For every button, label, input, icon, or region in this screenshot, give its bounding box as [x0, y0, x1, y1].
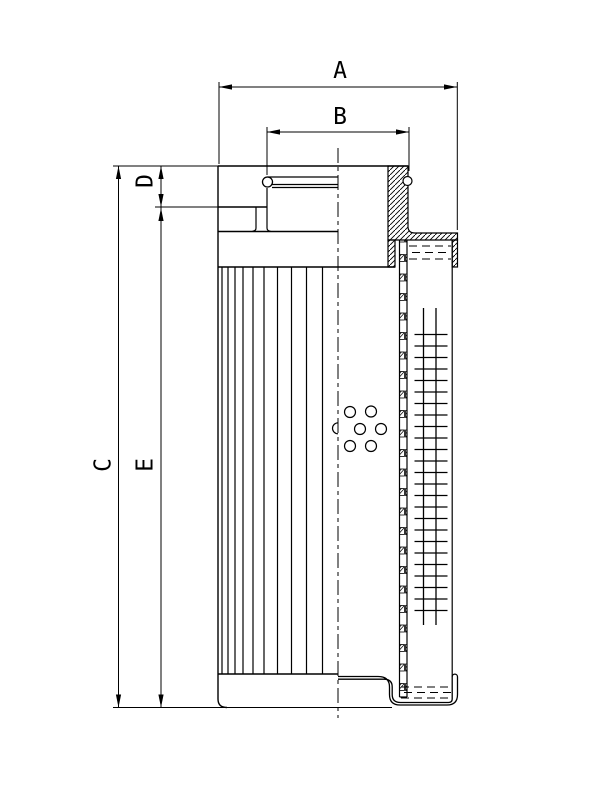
o-ring	[403, 177, 412, 186]
dim-label-b: B	[333, 104, 347, 130]
head-skirt-right-section	[452, 240, 457, 267]
perforated-core-tube	[400, 240, 408, 697]
filter-element-drawing: A B C D E	[0, 0, 612, 792]
technical-drawing-sheet: A B C D E	[0, 0, 612, 792]
dim-label-e: E	[133, 458, 159, 472]
support-mesh	[415, 308, 448, 625]
dim-label-d: D	[133, 174, 159, 188]
dim-label-c: C	[91, 458, 117, 472]
mesh-rungs	[415, 332, 448, 618]
perforation-pattern	[400, 240, 408, 697]
dim-label-a: A	[333, 58, 347, 84]
head-skirt-left-section	[388, 240, 395, 267]
thread-tip	[263, 177, 273, 187]
